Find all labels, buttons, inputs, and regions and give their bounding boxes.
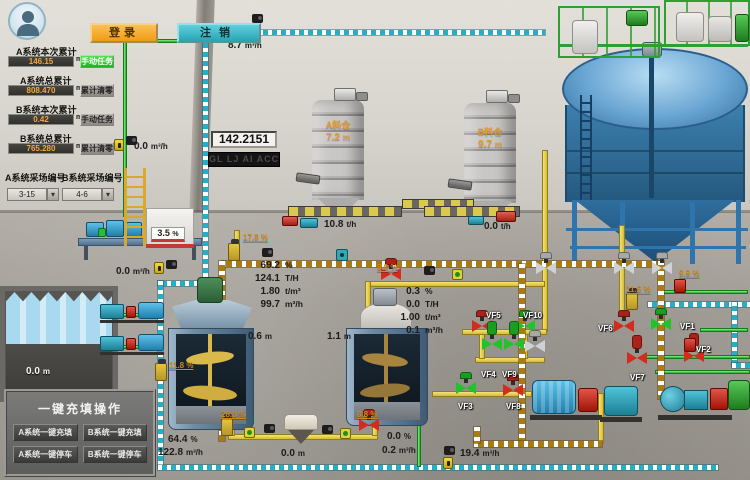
pump-set1-motor [138, 302, 164, 319]
pump-set2-coupling [126, 338, 136, 350]
manual-task-button-a[interactable]: 手动任务 [80, 55, 114, 68]
scada-screen: 登录 注销 A系统本次累计 146.15 m³ 手动任务 A系统总累计 808.… [0, 0, 750, 480]
one-key-fill-b-button[interactable]: B系统一键充填 [83, 424, 148, 441]
pump-set2-motor [138, 334, 164, 351]
pipe-yellow-riser1 [542, 150, 548, 332]
platform-tank-small3 [708, 16, 732, 42]
pipe-teal-right-stub [732, 363, 750, 368]
avatar-head-icon [22, 11, 34, 23]
conveyor-a-motor [300, 218, 318, 228]
discharge-hopper [284, 414, 318, 430]
reset-total-button-a[interactable]: 累计清零 [80, 84, 114, 97]
thickener-lattice1 [566, 228, 748, 231]
platform-pump2 [106, 220, 124, 237]
platform-status-lamp [98, 228, 106, 237]
accumulator-display: 142.2151 [211, 131, 277, 148]
thickener-ladder [580, 95, 592, 200]
silo-b-name: B料仓 [464, 125, 516, 138]
isolation-valve-3[interactable] [652, 262, 672, 274]
flocculant-tank-badge: 3.5 % [151, 227, 185, 242]
conveyor-b-motor [468, 216, 484, 225]
one-key-panel-title: 一键充填操作 [7, 400, 153, 417]
selector-label-a: A系统采场编号 [5, 171, 66, 184]
pipe-teal-bottom [158, 465, 718, 470]
silo-a-top-filter [334, 88, 356, 101]
avatar-body-icon [17, 24, 39, 36]
one-key-panel: 一键充填操作 A系统一键充填 B系统一键充填 A系统一键停车 B系统一键停车 [4, 389, 156, 477]
stope-select-a[interactable]: 3-15 [7, 188, 47, 201]
conveyor-a-pump [282, 216, 298, 226]
selector-label-b: B系统采场编号 [62, 171, 123, 184]
pipe-brown-bottom-stub [474, 427, 480, 443]
pipe-green-right2 [700, 328, 748, 332]
thickener-leg1 [572, 200, 577, 264]
mixer1-top-deck [172, 300, 252, 330]
thickener-center-shaft [649, 58, 654, 198]
slurry-pump3-base [658, 415, 732, 420]
valve-vf7[interactable] [627, 352, 647, 364]
valve-vf8[interactable] [503, 384, 523, 396]
slurry-pump3-body [684, 390, 708, 410]
silo-a: A料仓 7.2 m [312, 100, 364, 200]
discharge-hopper-cone [288, 430, 314, 444]
platform-leg2 [192, 246, 196, 260]
field-value-a-total: 808.470 [8, 85, 74, 96]
login-button[interactable]: 登录 [90, 23, 158, 43]
marquee-display: GL LJ AI ACC [208, 152, 280, 167]
green-motor-right [728, 380, 750, 410]
one-key-fill-a-button[interactable]: A系统一键充填 [13, 424, 78, 441]
silo-b-level: 9.7 m [464, 139, 516, 150]
pump-set2-pump [100, 336, 124, 351]
ladder [124, 168, 146, 246]
pipe-green-right4 [655, 370, 750, 374]
control-valve-discharge[interactable] [359, 419, 379, 431]
slurry-pump2-base [600, 417, 642, 422]
slurry-pump3-volute [660, 386, 686, 412]
pipe-brown-top [222, 261, 662, 267]
thickener-band2 [567, 172, 743, 174]
flocculant-tank-stripe [146, 244, 194, 248]
conveyor-b-pump [496, 211, 516, 222]
pipe-brown-mid [519, 264, 525, 442]
valve-vf1[interactable] [651, 318, 671, 330]
silo-a-top-motor [356, 92, 368, 101]
logout-button[interactable]: 注销 [177, 23, 261, 43]
pump-set1-coupling [126, 306, 136, 318]
pipe-green-right1 [660, 290, 748, 294]
platform-leg1 [84, 246, 88, 260]
slurry-pump2 [604, 386, 638, 416]
one-key-stop-b-button[interactable]: B系统一键停车 [83, 446, 148, 463]
valve-vf9[interactable] [504, 338, 524, 350]
isolation-valve-4[interactable] [525, 340, 545, 352]
silo-b-top-motor [508, 94, 520, 103]
manual-task-button-b[interactable]: 手动任务 [80, 113, 114, 126]
platform-tank-small [572, 20, 598, 54]
slurry-pump1 [578, 388, 598, 412]
reset-total-button-b[interactable]: 累计清零 [80, 142, 114, 155]
silo-a-name: A料仓 [312, 118, 364, 131]
mixer1-motor [197, 277, 223, 303]
slurry-pump1-base [530, 415, 602, 420]
mixer1-slurry [176, 406, 246, 424]
pipe-brown-bottom [474, 441, 602, 447]
stope-select-b[interactable]: 4-6 [62, 188, 102, 201]
pipe-brown-right [658, 261, 664, 399]
user-avatar[interactable] [8, 2, 46, 40]
mixer2-top-dome [360, 302, 412, 330]
valve-vf2[interactable] [684, 350, 704, 362]
pump-set1-pump [100, 304, 124, 319]
one-key-stop-a-button[interactable]: A系统一键停车 [13, 446, 78, 463]
control-valve-feed[interactable] [381, 268, 401, 280]
conveyor-a [288, 206, 402, 217]
stope-select-b-arrow-icon[interactable]: ▾ [102, 188, 114, 201]
thickener-leg4 [736, 200, 741, 264]
thickener-leg3 [690, 202, 695, 264]
platform-green-motor2 [735, 14, 749, 42]
valve-vf6[interactable] [614, 320, 634, 332]
silo-b: B料仓 9.7 m [464, 103, 516, 203]
stope-select-a-arrow-icon[interactable]: ▾ [47, 188, 59, 201]
field-value-b-batch: 0.42 [8, 114, 74, 125]
slurry-pump1-motor [532, 380, 576, 414]
field-value-b-total: 765.280 [8, 143, 74, 154]
mixer2-motor [373, 288, 397, 306]
valve-vf3[interactable] [456, 382, 476, 394]
isolation-valve-2[interactable] [614, 262, 634, 274]
silo-a-level: 7.2 m [312, 132, 364, 143]
isolation-valve-1[interactable] [536, 262, 556, 274]
valve-vf4[interactable] [482, 338, 502, 350]
pump-set2-base [100, 352, 164, 355]
platform-green-motor [626, 10, 648, 26]
thickener-lattice2 [570, 246, 746, 249]
silo-b-top-filter [486, 90, 508, 103]
slurry-pump3-coupling [710, 388, 728, 410]
field-value-a-batch: 146.15 [8, 56, 74, 67]
pipe-yellow-mixer1-feed [234, 230, 240, 264]
pump-set1-base [100, 320, 164, 323]
pipe-yellow-vf4-row [475, 357, 545, 363]
platform-tank-small2 [676, 12, 704, 42]
thickener-band1 [567, 150, 743, 152]
